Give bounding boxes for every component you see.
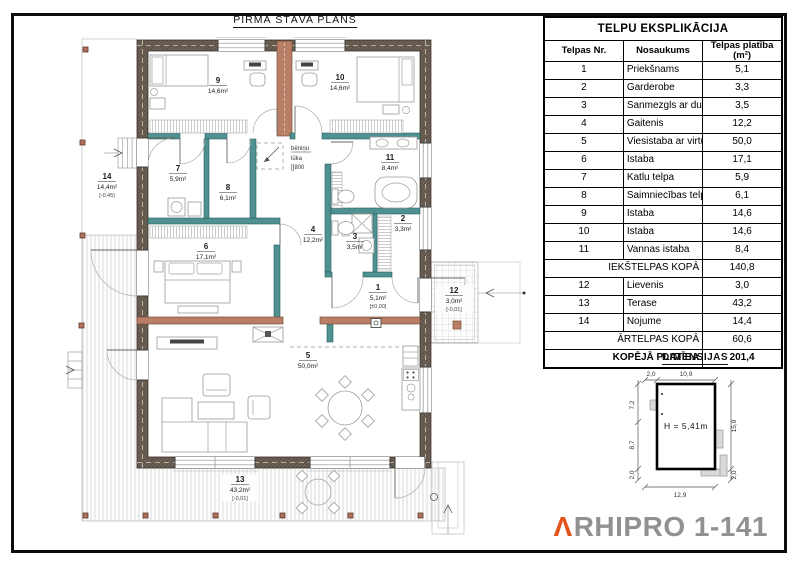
- svg-text:14: 14: [103, 172, 112, 181]
- svg-text:2,0: 2,0: [629, 470, 636, 479]
- table-row: 13Terase43,2: [544, 295, 782, 313]
- table-row: 7Katlu telpa5,9: [544, 169, 782, 187]
- plan-title: PIRMĀ STĀVA PLĀNS: [165, 14, 425, 26]
- subtotal-inner-row: IEKŠTELPAS KOPĀ140,8: [544, 259, 782, 277]
- room-label-6: 617,1m²: [196, 242, 217, 261]
- svg-text:43,2m²: 43,2m²: [230, 487, 251, 494]
- svg-text:4: 4: [311, 225, 316, 234]
- table-row: 1Priekšnams5,1: [544, 61, 782, 79]
- svg-text:17,1m²: 17,1m²: [196, 254, 217, 261]
- svg-text:[]800: []800: [291, 165, 305, 171]
- svg-text:15,9: 15,9: [731, 419, 738, 432]
- table-row: 10Istaba14,6: [544, 223, 782, 241]
- dimensions-title: DIMENSIJAS: [600, 352, 790, 363]
- table-row: 11Vannas istaba8,4: [544, 241, 782, 259]
- svg-text:13: 13: [236, 475, 245, 484]
- svg-text:2: 2: [401, 214, 406, 223]
- svg-text:14,4m²: 14,4m²: [97, 184, 118, 191]
- svg-text:6,1m²: 6,1m²: [220, 195, 237, 202]
- attic-label: bēniņu lūka []800: [291, 146, 311, 171]
- col-header-area: Telpas platība (m²): [703, 41, 782, 62]
- room-label-9: 914,6m²: [208, 76, 229, 95]
- svg-text:7,2: 7,2: [629, 400, 636, 409]
- room-label-8: 86,1m²: [219, 183, 237, 202]
- svg-text:bēniņu: bēniņu: [291, 146, 309, 152]
- svg-text:[-0,01]: [-0,01]: [446, 307, 462, 313]
- svg-text:3,0m²: 3,0m²: [446, 298, 463, 305]
- floor-plan: bēniņu lūka []800: [58, 30, 536, 542]
- svg-text:1: 1: [376, 283, 381, 292]
- svg-text:12,2m²: 12,2m²: [303, 237, 324, 244]
- table-row: 2Garderobe3,3: [544, 79, 782, 97]
- table-row: 3Sanmezgls ar dušu3,5: [544, 97, 782, 115]
- room-label-10: 1014,6m²: [330, 73, 351, 92]
- table-header-row: Telpas Nr. Nosaukums Telpas platība (m²): [544, 41, 782, 62]
- svg-text:8,4m²: 8,4m²: [382, 165, 399, 172]
- svg-text:5,1m²: 5,1m²: [370, 295, 387, 302]
- svg-text:6: 6: [204, 242, 209, 251]
- table-row: 8Saimniecības telpa6,1: [544, 187, 782, 205]
- room-label-2: 23,3m²: [394, 214, 412, 233]
- svg-text:10,9: 10,9: [680, 371, 693, 378]
- room-label-1: 15,1m²[±0,00]: [369, 283, 387, 310]
- dimensions-diagram: 2,0 10,9 7,2 8,7 2,0 15,9 2,0 12,9 H = 5…: [600, 363, 790, 503]
- svg-text:14,6m²: 14,6m²: [208, 88, 229, 95]
- logo: ΛRHIPRO 1-141: [540, 507, 768, 547]
- table-row: 9Istaba14,6: [544, 205, 782, 223]
- svg-text:5,9m²: 5,9m²: [170, 176, 187, 183]
- svg-text:7: 7: [176, 164, 181, 173]
- svg-text:[-0,01]: [-0,01]: [232, 496, 248, 502]
- svg-text:12: 12: [450, 286, 459, 295]
- svg-text:11: 11: [386, 153, 395, 162]
- svg-text:2,0: 2,0: [731, 470, 738, 479]
- svg-text:9: 9: [216, 76, 221, 85]
- canopy-area: [82, 39, 137, 235]
- table-row: 4Gaitenis12,2: [544, 115, 782, 133]
- room-label-7: 75,9m²: [169, 164, 187, 183]
- svg-text:[-0,45]: [-0,45]: [99, 193, 115, 199]
- svg-text:10: 10: [336, 73, 345, 82]
- dimensions-block: DIMENSIJAS 2,0 10,9 7,2 8,7 2,0 15,9 2,0…: [600, 352, 790, 508]
- table-row: 14Nojume14,4: [544, 313, 782, 331]
- table-row: 12Lievenis3,0: [544, 277, 782, 295]
- svg-text:3,5m²: 3,5m²: [347, 244, 364, 251]
- room-label-4: 412,2m²: [303, 225, 324, 244]
- subtotal-outer-row: ĀRTELPAS KOPĀ60,6: [544, 331, 782, 349]
- terrace-steps: [66, 352, 82, 388]
- svg-text:2,0: 2,0: [646, 371, 655, 378]
- building-height-label: H = 5,41m: [664, 421, 708, 431]
- table-row: 5Viesistaba ar virtuvi50,0: [544, 133, 782, 151]
- room-label-11: 118,4m²: [381, 153, 399, 172]
- svg-text:8: 8: [226, 183, 231, 192]
- room-label-5: 550,0m²: [298, 351, 319, 370]
- svg-text:8,7: 8,7: [629, 440, 636, 449]
- svg-text:12,9: 12,9: [674, 492, 687, 499]
- svg-text:lūka: lūka: [291, 156, 303, 162]
- svg-text:[±0,00]: [±0,00]: [370, 304, 387, 310]
- table-title: TELPU EKSPLIKĀCIJA: [544, 17, 782, 41]
- terrace-deck: [82, 235, 445, 521]
- svg-text:3: 3: [353, 232, 358, 241]
- col-header-nr: Telpas Nr.: [544, 41, 623, 62]
- attic-hatch: [257, 143, 283, 169]
- svg-text:14,6m²: 14,6m²: [330, 85, 351, 92]
- room-schedule-table: TELPU EKSPLIKĀCIJA Telpas Nr. Nosaukums …: [543, 16, 783, 369]
- svg-text:5: 5: [306, 351, 311, 360]
- logo-text: RHIPRO 1-141: [574, 511, 768, 543]
- table-row: 6Istaba17,1: [544, 151, 782, 169]
- svg-text:50,0m²: 50,0m²: [298, 363, 319, 370]
- chimney: [277, 41, 292, 136]
- svg-text:3,3m²: 3,3m²: [395, 226, 412, 233]
- col-header-name: Nosaukums: [623, 41, 702, 62]
- logo-mark-icon: Λ: [554, 511, 573, 543]
